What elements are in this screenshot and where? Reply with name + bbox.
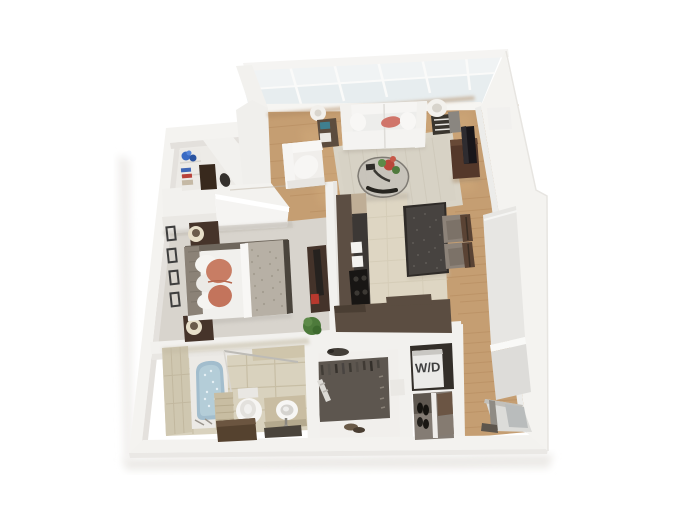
svg-text:W/D: W/D xyxy=(415,359,441,376)
